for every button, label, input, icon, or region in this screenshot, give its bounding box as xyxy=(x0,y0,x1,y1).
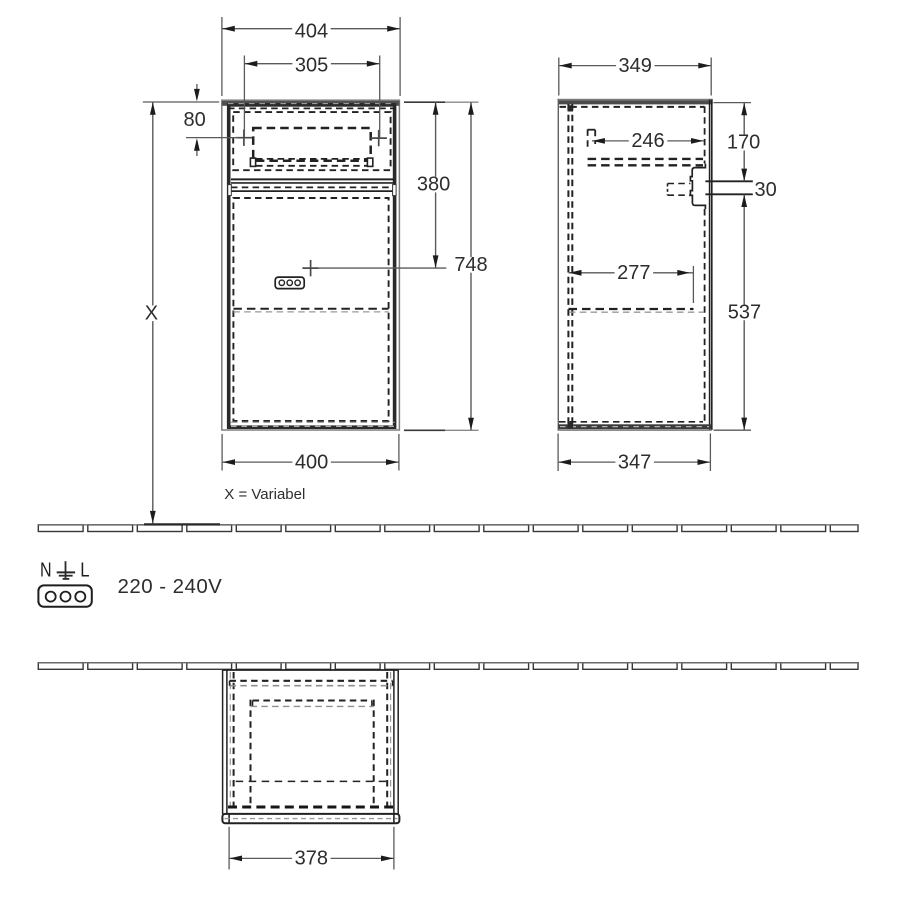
svg-text:380: 380 xyxy=(417,174,450,196)
svg-text:X = Variabel: X = Variabel xyxy=(224,486,305,503)
svg-text:L: L xyxy=(80,560,89,582)
svg-text:400: 400 xyxy=(295,451,328,473)
svg-text:277: 277 xyxy=(617,262,650,284)
svg-text:N: N xyxy=(40,560,52,582)
svg-text:404: 404 xyxy=(295,20,328,42)
svg-text:80: 80 xyxy=(183,109,205,131)
svg-text:349: 349 xyxy=(619,55,652,77)
svg-text:347: 347 xyxy=(618,451,651,473)
svg-text:748: 748 xyxy=(454,254,487,276)
svg-text:X: X xyxy=(145,302,158,324)
svg-text:170: 170 xyxy=(727,132,760,154)
svg-text:537: 537 xyxy=(728,301,761,323)
svg-text:378: 378 xyxy=(295,848,328,870)
svg-text:246: 246 xyxy=(631,130,664,152)
svg-text:220 - 240V: 220 - 240V xyxy=(118,575,223,598)
svg-text:305: 305 xyxy=(295,54,328,76)
svg-text:30: 30 xyxy=(755,179,777,201)
